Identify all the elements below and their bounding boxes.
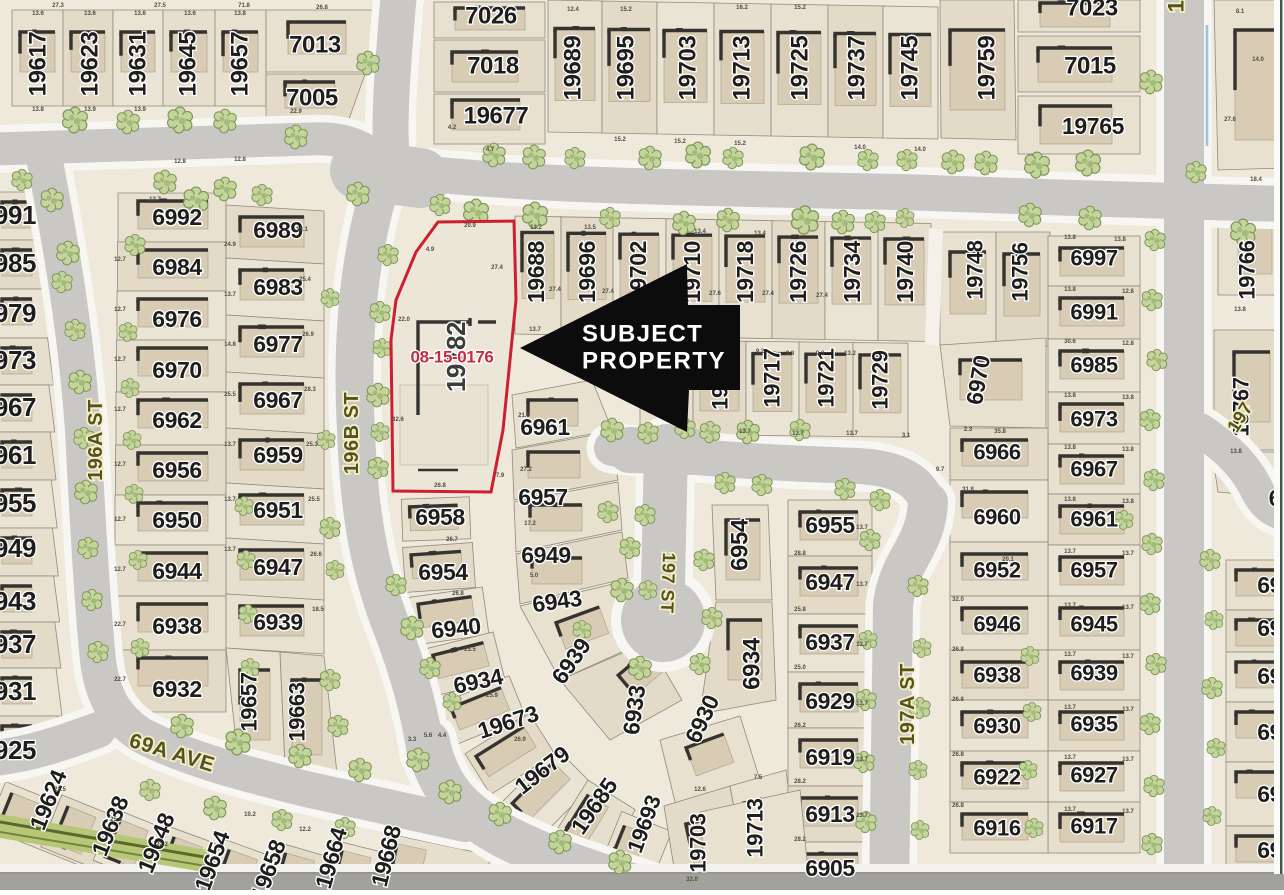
svg-text:3.1: 3.1	[902, 433, 911, 439]
svg-text:19717: 19717	[760, 348, 785, 407]
svg-text:6931: 6931	[0, 676, 36, 706]
svg-text:22.5: 22.5	[54, 787, 66, 793]
svg-text:6991: 6991	[0, 200, 36, 230]
svg-text:13.8: 13.8	[1064, 393, 1076, 399]
svg-text:26.9: 26.9	[302, 332, 314, 338]
svg-text:6977: 6977	[253, 331, 303, 357]
svg-text:13.2: 13.2	[844, 351, 856, 357]
svg-text:31.8: 31.8	[962, 487, 974, 493]
svg-text:13.7: 13.7	[856, 701, 868, 707]
svg-text:PROPERTY: PROPERTY	[582, 348, 726, 375]
svg-text:28.3: 28.3	[304, 387, 316, 393]
svg-text:22.9: 22.9	[290, 109, 302, 115]
svg-text:18.4: 18.4	[1250, 177, 1262, 183]
svg-text:6916: 6916	[973, 816, 1021, 841]
svg-text:25.0: 25.0	[794, 665, 806, 671]
svg-text:25.3: 25.3	[306, 442, 318, 448]
svg-text:19766: 19766	[1235, 240, 1260, 299]
svg-text:19745: 19745	[897, 36, 924, 101]
svg-text:19756: 19756	[1008, 242, 1033, 301]
svg-text:4.2: 4.2	[448, 125, 457, 131]
svg-text:10.2: 10.2	[244, 812, 256, 818]
svg-text:19657: 19657	[227, 32, 254, 97]
svg-text:13.8: 13.8	[1064, 497, 1076, 503]
svg-text:6917: 6917	[1070, 814, 1118, 839]
svg-text:13.6: 13.6	[84, 11, 96, 17]
svg-text:12.7: 12.7	[114, 407, 126, 413]
svg-text:19713: 19713	[743, 798, 768, 857]
svg-text:6957: 6957	[1070, 558, 1118, 583]
svg-text:6932: 6932	[152, 676, 202, 702]
svg-text:27.4: 27.4	[602, 289, 614, 295]
svg-text:20.1: 20.1	[1002, 557, 1014, 563]
svg-text:6940: 6940	[430, 612, 482, 643]
svg-text:12.7: 12.7	[114, 357, 126, 363]
svg-text:24.9: 24.9	[224, 242, 236, 248]
svg-text:12.4: 12.4	[567, 7, 579, 13]
svg-text:19703: 19703	[675, 36, 702, 101]
svg-text:13.6: 13.6	[134, 11, 146, 17]
svg-text:6949: 6949	[521, 542, 571, 568]
svg-text:27.4: 27.4	[491, 265, 503, 271]
svg-text:13.8: 13.8	[1064, 287, 1076, 293]
svg-text:197A ST: 197A ST	[897, 663, 919, 745]
svg-text:71.8: 71.8	[238, 3, 250, 9]
svg-text:7013: 7013	[289, 32, 341, 59]
svg-text:6951: 6951	[253, 497, 303, 523]
svg-text:9.7: 9.7	[936, 467, 945, 473]
svg-text:6961: 6961	[0, 440, 36, 470]
svg-text:14.0: 14.0	[914, 147, 926, 153]
svg-text:28.8: 28.8	[794, 551, 806, 557]
svg-text:6925: 6925	[0, 735, 36, 765]
svg-text:19703: 19703	[686, 813, 711, 872]
svg-text:13.7: 13.7	[224, 497, 236, 503]
svg-text:15.2: 15.2	[614, 137, 626, 143]
svg-text:6943: 6943	[0, 586, 36, 616]
svg-text:14.8: 14.8	[224, 342, 236, 348]
svg-text:27.6: 27.6	[709, 291, 721, 297]
svg-text:22.0: 22.0	[398, 317, 410, 323]
svg-text:13.7: 13.7	[149, 197, 161, 203]
svg-text:19689: 19689	[560, 36, 587, 101]
svg-text:6947: 6947	[253, 554, 303, 580]
svg-text:6955: 6955	[0, 488, 36, 518]
svg-text:4.7: 4.7	[486, 147, 495, 153]
svg-text:6922: 6922	[973, 765, 1021, 790]
svg-text:6984: 6984	[152, 254, 202, 280]
svg-text:13.8: 13.8	[1122, 395, 1134, 401]
svg-text:28.2: 28.2	[794, 779, 806, 785]
svg-text:197 ST: 197 ST	[657, 552, 679, 614]
svg-text:12.7: 12.7	[114, 567, 126, 573]
svg-text:6930: 6930	[973, 714, 1021, 739]
svg-text:6959: 6959	[253, 442, 303, 468]
svg-text:6973: 6973	[1070, 407, 1118, 432]
svg-text:6997: 6997	[1070, 246, 1118, 271]
svg-text:26.8: 26.8	[952, 752, 964, 758]
svg-text:6956: 6956	[152, 457, 202, 483]
svg-text:6950: 6950	[152, 507, 202, 533]
svg-text:13.8: 13.8	[1230, 449, 1242, 455]
svg-text:26.8: 26.8	[316, 5, 328, 11]
svg-text:22.2: 22.2	[156, 842, 168, 848]
svg-text:13.7: 13.7	[739, 429, 751, 435]
svg-text:12.8: 12.8	[1122, 341, 1134, 347]
svg-text:13.5: 13.5	[584, 225, 596, 231]
svg-text:22.7: 22.7	[114, 677, 126, 683]
svg-text:6945: 6945	[1070, 612, 1118, 637]
svg-text:SUBJECT: SUBJECT	[582, 321, 703, 348]
svg-text:13.8: 13.8	[1122, 499, 1134, 505]
svg-text:13.6: 13.6	[184, 11, 196, 17]
svg-text:32.0: 32.0	[952, 597, 964, 603]
svg-text:6937: 6937	[805, 629, 855, 655]
svg-text:6946: 6946	[973, 612, 1021, 637]
svg-text:19688: 19688	[523, 240, 549, 303]
svg-text:6913: 6913	[805, 801, 855, 827]
svg-text:12.8: 12.8	[234, 157, 246, 163]
svg-text:17.2: 17.2	[524, 521, 536, 527]
svg-text:6985: 6985	[0, 248, 36, 278]
svg-text:13.7: 13.7	[1122, 707, 1134, 713]
svg-text:26.8: 26.8	[952, 697, 964, 703]
svg-text:13.8: 13.8	[32, 107, 44, 113]
svg-text:8.1: 8.1	[1236, 9, 1245, 15]
svg-text:13.7: 13.7	[1122, 757, 1134, 763]
svg-text:3.3: 3.3	[408, 737, 417, 743]
svg-text:6955: 6955	[805, 512, 855, 538]
svg-text:19748: 19748	[963, 240, 988, 299]
svg-text:196A ST: 196A ST	[85, 399, 107, 481]
svg-text:25.5: 25.5	[308, 497, 320, 503]
svg-text:7.9: 7.9	[496, 473, 505, 479]
svg-text:25.8: 25.8	[110, 817, 122, 823]
svg-text:4.4: 4.4	[438, 733, 447, 739]
svg-text:19631: 19631	[125, 32, 152, 97]
svg-text:13.9: 13.9	[134, 107, 146, 113]
svg-text:26.6: 26.6	[310, 552, 322, 558]
svg-text:27.4: 27.4	[816, 293, 828, 299]
svg-text:15.2: 15.2	[734, 141, 746, 147]
svg-text:6961: 6961	[1070, 507, 1118, 532]
svg-text:6967: 6967	[253, 387, 303, 413]
svg-text:26.8: 26.8	[434, 483, 446, 489]
svg-text:8.8: 8.8	[786, 351, 795, 357]
svg-text:6919: 6919	[805, 744, 855, 770]
svg-text:19696: 19696	[574, 241, 600, 303]
svg-text:25.5: 25.5	[224, 392, 236, 398]
svg-text:13.2: 13.2	[530, 225, 542, 231]
svg-text:25.4: 25.4	[299, 277, 311, 283]
svg-text:12.7: 12.7	[114, 517, 126, 523]
svg-text:19713: 19713	[729, 36, 756, 101]
svg-text:18.1: 18.1	[296, 227, 308, 233]
svg-text:6967: 6967	[1070, 457, 1118, 482]
svg-text:15.2: 15.2	[674, 139, 686, 145]
svg-text:1: 1	[1164, 0, 1189, 12]
svg-text:6939: 6939	[253, 609, 303, 635]
svg-text:6947: 6947	[805, 569, 855, 595]
svg-text:30.6: 30.6	[1064, 339, 1076, 345]
svg-text:6970: 6970	[152, 357, 202, 383]
svg-text:13.8: 13.8	[1064, 235, 1076, 241]
svg-text:19726: 19726	[785, 241, 811, 303]
svg-text:08-15-0176: 08-15-0176	[411, 348, 494, 367]
svg-text:13.7: 13.7	[846, 431, 858, 437]
svg-text:19623: 19623	[77, 32, 104, 97]
svg-text:7018: 7018	[467, 53, 519, 80]
svg-text:19695: 19695	[613, 36, 640, 101]
svg-text:6966: 6966	[973, 440, 1021, 465]
svg-text:25.5: 25.5	[464, 647, 476, 653]
svg-text:14.0: 14.0	[1252, 57, 1264, 63]
svg-text:7015: 7015	[1064, 53, 1116, 80]
svg-text:13.7: 13.7	[1122, 654, 1134, 660]
svg-text:13.7: 13.7	[1064, 549, 1076, 555]
svg-text:6991: 6991	[1070, 300, 1118, 325]
svg-text:32.0: 32.0	[686, 877, 698, 883]
svg-text:15.2: 15.2	[620, 7, 632, 13]
svg-text:13.7: 13.7	[1064, 652, 1076, 658]
svg-text:13.7: 13.7	[1064, 603, 1076, 609]
svg-text:7.5: 7.5	[754, 775, 763, 781]
svg-text:12.8: 12.8	[174, 159, 186, 165]
svg-text:6958: 6958	[415, 504, 465, 530]
svg-text:16.2: 16.2	[736, 5, 748, 11]
svg-text:27.8: 27.8	[1224, 117, 1236, 123]
svg-text:19718: 19718	[732, 240, 758, 303]
svg-text:12.7: 12.7	[114, 307, 126, 313]
svg-text:19740: 19740	[892, 241, 918, 303]
svg-text:19729: 19729	[868, 350, 893, 409]
svg-text:6985: 6985	[1070, 353, 1118, 378]
svg-text:6935: 6935	[1070, 712, 1118, 737]
svg-text:21.5: 21.5	[518, 413, 530, 419]
svg-text:18.5: 18.5	[312, 607, 324, 613]
svg-text:19721: 19721	[814, 348, 839, 407]
svg-text:13.8: 13.8	[234, 11, 246, 17]
svg-text:7005: 7005	[286, 85, 338, 112]
svg-text:2.3: 2.3	[964, 427, 973, 433]
svg-text:25.9: 25.9	[486, 693, 498, 699]
svg-text:35.8: 35.8	[994, 429, 1006, 435]
svg-text:13.8: 13.8	[1114, 237, 1126, 243]
svg-text:196B ST: 196B ST	[341, 392, 363, 474]
svg-text:19663: 19663	[285, 682, 310, 741]
svg-text:22.7: 22.7	[114, 622, 126, 628]
svg-text:25.8: 25.8	[794, 607, 806, 613]
svg-text:6973: 6973	[0, 345, 36, 375]
svg-text:13.4: 13.4	[754, 231, 766, 237]
svg-text:15.2: 15.2	[794, 5, 806, 11]
svg-text:27.4: 27.4	[762, 291, 774, 297]
svg-text:27.3: 27.3	[52, 3, 64, 9]
svg-text:13.7: 13.7	[856, 813, 868, 819]
svg-text:13.7: 13.7	[529, 327, 541, 333]
svg-text:13.6: 13.6	[32, 11, 44, 17]
svg-text:6983: 6983	[253, 274, 303, 300]
svg-text:13.4: 13.4	[694, 229, 706, 235]
svg-text:4.9: 4.9	[426, 247, 435, 253]
svg-text:6905: 6905	[805, 855, 855, 881]
svg-text:19759: 19759	[974, 36, 1001, 101]
svg-text:27.2: 27.2	[520, 467, 532, 473]
svg-text:26.8: 26.8	[952, 803, 964, 809]
svg-text:12.7: 12.7	[114, 462, 126, 468]
svg-text:26.9: 26.9	[514, 737, 526, 743]
svg-text:26.8: 26.8	[952, 647, 964, 653]
svg-text:19657: 19657	[237, 672, 262, 731]
svg-text:13.7: 13.7	[224, 442, 236, 448]
svg-text:12.8: 12.8	[1122, 289, 1134, 295]
svg-text:13.7: 13.7	[1122, 605, 1134, 611]
svg-text:32.6: 32.6	[392, 417, 404, 423]
svg-text:6967: 6967	[0, 392, 36, 422]
svg-text:27.4: 27.4	[549, 287, 561, 293]
svg-text:19765: 19765	[1062, 113, 1125, 139]
svg-text:19677: 19677	[464, 103, 529, 130]
svg-text:6976: 6976	[152, 306, 202, 332]
svg-text:6938: 6938	[973, 663, 1021, 688]
svg-text:5.0: 5.0	[530, 573, 539, 579]
svg-text:13.7: 13.7	[224, 292, 236, 298]
svg-text:12.6: 12.6	[694, 787, 706, 793]
svg-text:28.2: 28.2	[794, 837, 806, 843]
svg-text:6934: 6934	[739, 637, 766, 690]
svg-text:6939: 6939	[1070, 661, 1118, 686]
svg-text:13.7: 13.7	[1064, 807, 1076, 813]
svg-text:6949: 6949	[0, 533, 36, 563]
svg-text:19617: 19617	[25, 32, 52, 97]
svg-text:6937: 6937	[0, 629, 36, 659]
svg-text:6954: 6954	[727, 518, 754, 571]
svg-text:19645: 19645	[175, 32, 202, 97]
svg-text:13.7: 13.7	[224, 547, 236, 553]
svg-text:6944: 6944	[152, 558, 202, 584]
svg-text:20.9: 20.9	[464, 223, 476, 229]
svg-text:13.9: 13.9	[84, 107, 96, 113]
svg-text:6957: 6957	[518, 484, 568, 510]
svg-text:13.8: 13.8	[1064, 445, 1076, 451]
svg-text:26.2: 26.2	[794, 723, 806, 729]
svg-text:13.8: 13.8	[1122, 447, 1134, 453]
svg-text:6927: 6927	[1070, 763, 1118, 788]
svg-text:12.2: 12.2	[299, 827, 311, 833]
svg-text:13.7: 13.7	[1064, 705, 1076, 711]
svg-text:12.7: 12.7	[114, 257, 126, 263]
svg-text:7023: 7023	[1066, 0, 1118, 22]
svg-text:6960: 6960	[973, 505, 1021, 530]
svg-text:5.6: 5.6	[424, 733, 433, 739]
svg-text:19734: 19734	[839, 240, 865, 303]
svg-text:26.8: 26.8	[452, 591, 464, 597]
svg-text:13.7: 13.7	[1064, 755, 1076, 761]
svg-text:6962: 6962	[152, 407, 202, 433]
svg-text:13.7: 13.7	[1122, 551, 1134, 557]
svg-text:13.7: 13.7	[856, 642, 868, 648]
svg-text:19725: 19725	[787, 36, 814, 101]
svg-text:6992: 6992	[152, 204, 202, 230]
svg-text:27.5: 27.5	[154, 3, 166, 9]
svg-text:9.3: 9.3	[816, 351, 825, 357]
svg-text:13.7: 13.7	[856, 757, 868, 763]
svg-text:13.7: 13.7	[1122, 809, 1134, 815]
svg-text:13.7: 13.7	[856, 525, 868, 531]
svg-text:6979: 6979	[0, 298, 36, 328]
svg-text:19737: 19737	[844, 36, 871, 101]
svg-text:6954: 6954	[418, 559, 468, 585]
svg-text:13.7: 13.7	[856, 582, 868, 588]
svg-text:14.0: 14.0	[854, 145, 866, 151]
svg-text:7026: 7026	[465, 3, 517, 30]
svg-text:6938: 6938	[152, 613, 202, 639]
svg-text:13.8: 13.8	[1234, 307, 1246, 313]
svg-text:13.7: 13.7	[792, 431, 804, 437]
svg-text:26.7: 26.7	[446, 537, 458, 543]
svg-text:9.2: 9.2	[756, 349, 765, 355]
svg-text:6929: 6929	[805, 688, 855, 714]
